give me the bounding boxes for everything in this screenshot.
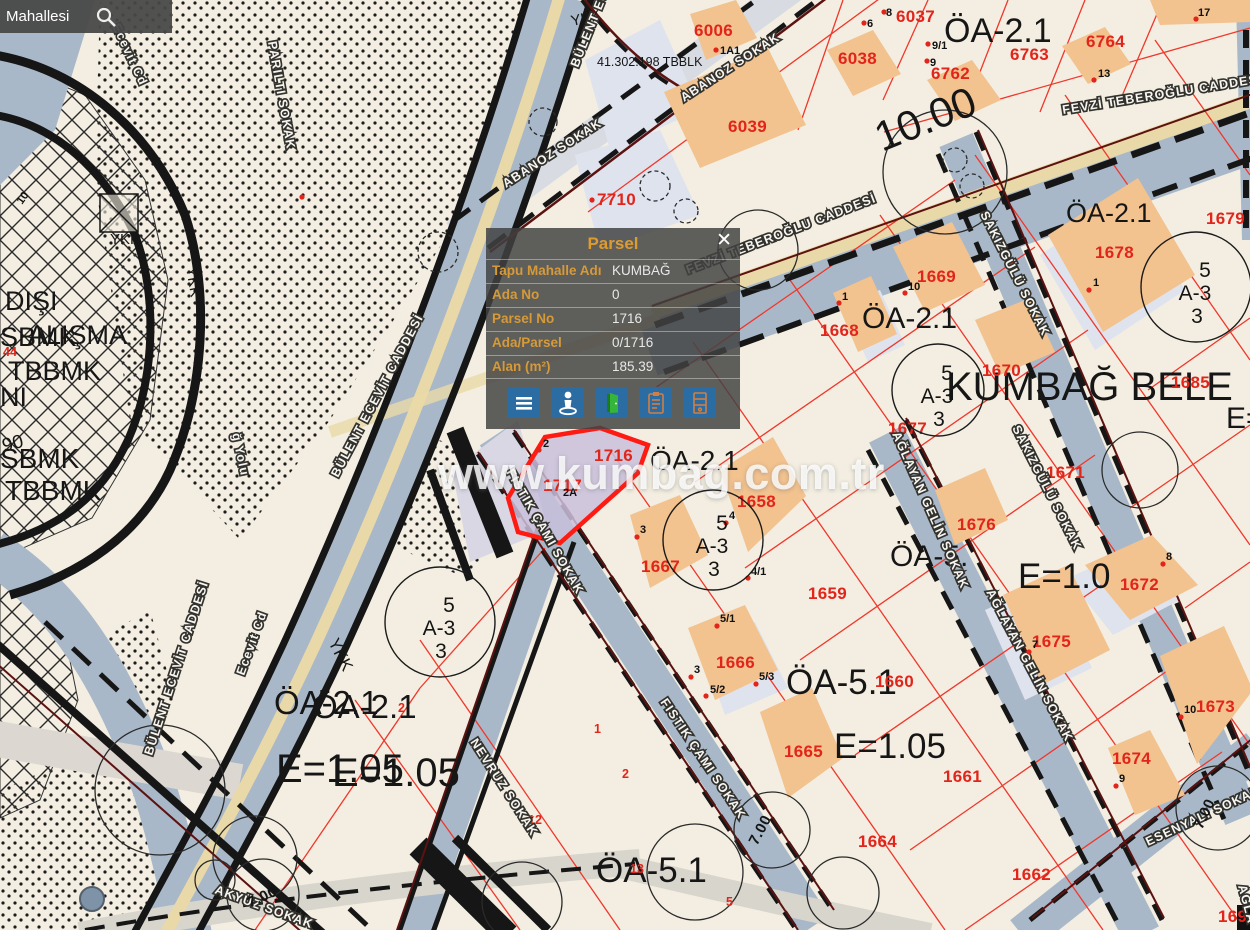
lot-number: 2	[622, 767, 629, 781]
parcel-point	[299, 194, 304, 199]
point-label: 9	[930, 57, 936, 69]
parcel-point	[881, 9, 886, 14]
parcel-number: 1671	[1046, 463, 1085, 482]
zone-label: ALIŞMA	[28, 320, 127, 350]
parcel-point	[902, 290, 907, 295]
lot-number: 44	[3, 345, 17, 359]
street-view-icon[interactable]	[551, 387, 584, 418]
point-label: 17	[1198, 7, 1210, 19]
parcel-number: 6763	[1010, 45, 1049, 64]
point-label: 5/1	[720, 613, 735, 625]
point-label: 1	[842, 291, 848, 303]
field-label: Alan (m²)	[492, 359, 612, 376]
zoning-circle-text: 5	[941, 362, 953, 385]
zone-label: E=1.05	[834, 727, 946, 766]
point-label: 3	[640, 524, 646, 536]
parcel-popup: Parsel ✕ Tapu Mahalle AdıKUMBAĞAda No0Pa…	[486, 228, 740, 429]
zoning-circle-text: 3	[708, 558, 720, 581]
parcel-number: 1664	[858, 832, 897, 851]
search-input[interactable]	[0, 8, 98, 25]
zoning-circle-text: 5	[1199, 259, 1211, 282]
parcel-point	[1113, 783, 1118, 788]
parcel-number: 1669	[917, 267, 956, 286]
zone-label: SBMK	[0, 443, 80, 474]
parcel-number: 6006	[694, 21, 733, 40]
point-label: 6	[867, 18, 873, 30]
popup-field-row: Tapu Mahalle AdıKUMBAĞ	[486, 259, 740, 283]
field-value: 1716	[612, 311, 734, 328]
point-label: 13	[1098, 68, 1110, 80]
cabinet-icon[interactable]	[683, 387, 716, 418]
parcel-point	[861, 20, 866, 25]
parcel-number: 6039	[728, 117, 767, 136]
point-label: 8	[886, 7, 892, 19]
parcel-number: 1672	[1120, 575, 1159, 594]
popup-field-row: Parsel No1716	[486, 307, 740, 331]
parcel-number: 1685	[1171, 373, 1210, 392]
point-label: 10	[908, 281, 920, 293]
popup-field-row: Alan (m²)185.39	[486, 355, 740, 379]
zone-label: NI	[0, 382, 27, 412]
point-label: 4	[729, 510, 736, 522]
parcel-number: 6762	[931, 64, 970, 83]
point-label: 9/1	[932, 40, 947, 52]
parcel-number: 1666	[716, 653, 755, 672]
zone-label: ÖA-2.1	[862, 302, 957, 335]
parcel-number: 1668	[820, 321, 859, 340]
parcel-number: 1670	[982, 361, 1021, 380]
parcel-point	[1091, 77, 1096, 82]
lot-number: 5	[726, 895, 733, 909]
point-label: 8	[1166, 551, 1172, 563]
parcel-point	[714, 623, 719, 628]
door-green-icon[interactable]	[595, 387, 628, 418]
point-label: 9	[1119, 773, 1125, 785]
point-label: 1	[1093, 277, 1099, 289]
lot-number: 1	[594, 722, 601, 736]
zoning-circle-text: A-3	[423, 617, 456, 640]
parcel-number: 1665	[784, 742, 823, 761]
zone-label: ÖA-5.1	[596, 851, 707, 890]
zoning-circle-text: 3	[933, 408, 945, 431]
parcel-point	[1026, 649, 1031, 654]
search-icon[interactable]	[94, 5, 118, 29]
parcel-point	[634, 534, 639, 539]
parcel-point	[589, 197, 594, 202]
parcel-point	[713, 47, 718, 52]
parcel-point	[925, 41, 930, 46]
zone-label: 41.302.198 TBBLK	[597, 55, 703, 69]
zoning-circle-text: A-3	[1179, 282, 1212, 305]
point-label: 7	[1032, 639, 1038, 651]
parcel-point	[1086, 287, 1091, 292]
zone-label: ÖA-2.1	[1066, 198, 1152, 228]
field-value: 0	[612, 287, 734, 304]
parcel-number: 6038	[838, 49, 877, 68]
parcel-point	[836, 300, 841, 305]
parcel-point	[1160, 561, 1165, 566]
field-label: Ada No	[492, 287, 612, 304]
parcel-number: 1676	[957, 515, 996, 534]
watermark: www.kumbag.com.tr	[438, 448, 885, 500]
close-icon[interactable]: ✕	[716, 231, 732, 250]
parcel-point	[924, 58, 929, 63]
parcel-number: 1674	[1112, 749, 1151, 768]
zoning-circle-text: 3	[435, 640, 447, 663]
popup-buttons	[486, 378, 740, 429]
lot-number: 2	[398, 701, 405, 715]
parcel-number: 6037	[896, 7, 935, 26]
point-label: 3	[694, 664, 700, 676]
parcel-point	[688, 674, 693, 679]
parcel-point	[1178, 714, 1183, 719]
field-value: 185.39	[612, 359, 734, 376]
parcel-number: 1667	[641, 557, 680, 576]
menu-icon[interactable]	[507, 387, 540, 418]
parcel-number: 1679	[1206, 209, 1245, 228]
ykk-symbol	[100, 194, 138, 232]
parcel-number: 1660	[875, 672, 914, 691]
field-label: Tapu Mahalle Adı	[492, 263, 612, 280]
point-label: 10	[1184, 704, 1196, 716]
popup-fields: Tapu Mahalle AdıKUMBAĞAda No0Parsel No17…	[486, 259, 740, 378]
zoning-circle-text: 3	[1191, 305, 1203, 328]
lot-number: 13	[630, 862, 644, 876]
parcel-point	[1193, 16, 1198, 21]
zone-label: YKK	[110, 231, 140, 248]
parcel-point	[703, 693, 708, 698]
parcel-number: 6764	[1086, 32, 1125, 51]
parcel-number: 1678	[1095, 243, 1134, 262]
search-bar	[0, 0, 172, 33]
parcel-number: 1659	[808, 584, 847, 603]
point-label: 4/1	[751, 566, 766, 578]
zone-label: E=1.0	[1018, 557, 1110, 596]
zone-label: DIŞI	[5, 286, 58, 316]
popup-title: Parsel	[486, 228, 740, 259]
field-value: KUMBAĞ	[612, 263, 734, 280]
parcel-number: 7710	[597, 190, 636, 209]
zoning-circle-text: A-3	[696, 535, 729, 558]
point-label: 5/3	[759, 671, 774, 683]
field-label: Ada/Parsel	[492, 335, 612, 352]
parcel-number: 1673	[1196, 697, 1235, 716]
zone-label: E=1.05	[332, 751, 460, 795]
parcel-point	[753, 681, 758, 686]
popup-field-row: Ada No0	[486, 283, 740, 307]
clipboard-icon[interactable]	[639, 387, 672, 418]
popup-field-row: Ada/Parsel0/1716	[486, 331, 740, 355]
parcel-number: 1661	[943, 767, 982, 786]
globe-marker-icon[interactable]	[80, 887, 104, 911]
map-viewer: ÖA-2.1ÖA-2.1ÖA-2.1ÖA-2.1ÖA-2.1ÖA-2.1E=1.…	[0, 0, 1250, 930]
field-value: 0/1716	[612, 335, 734, 352]
point-label: 5/2	[710, 684, 725, 696]
zoning-circle-text: 5	[716, 512, 728, 535]
parcel-number: 1662	[1012, 865, 1051, 884]
zone-label: TBBMK	[5, 475, 102, 506]
zoning-circle-text: 5	[443, 594, 455, 617]
field-label: Parsel No	[492, 311, 612, 328]
zoning-circle-text: A-3	[921, 385, 954, 408]
